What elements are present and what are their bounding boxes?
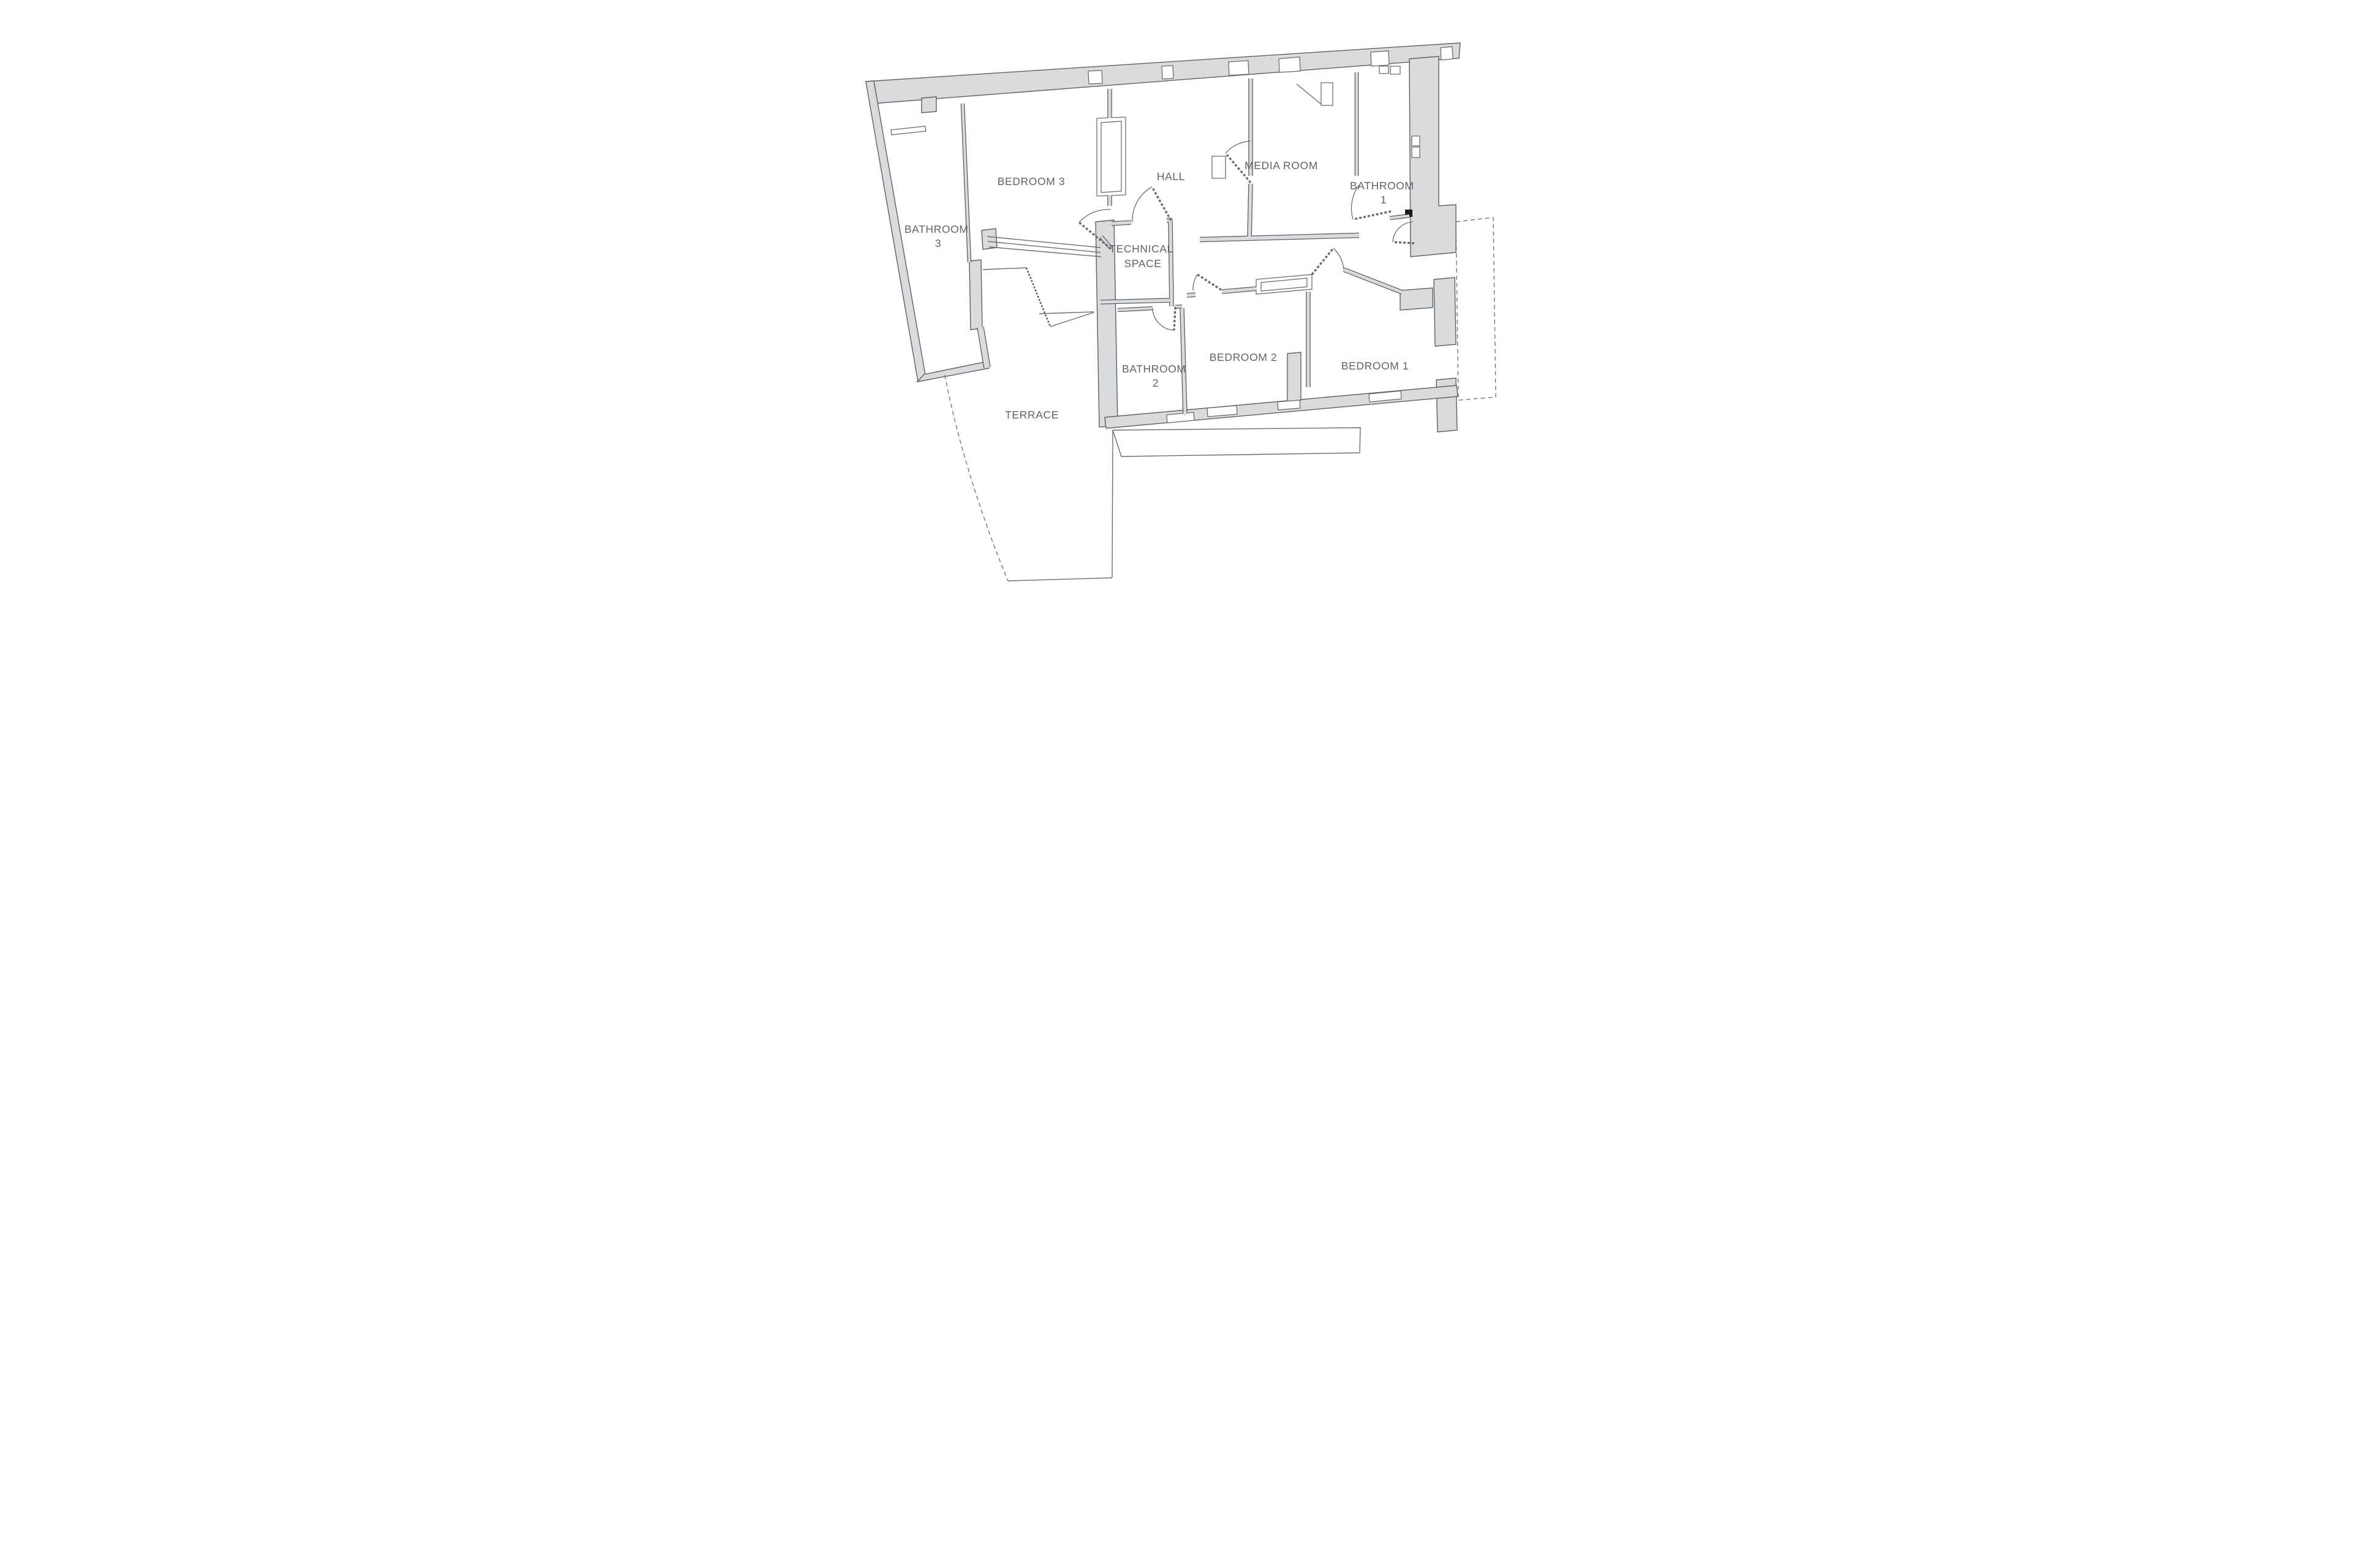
floor-plan-page: BEDROOM 3 BATHROOM 3 HALL MEDIA ROOM BAT… <box>703 0 1650 631</box>
door-arc <box>1132 187 1151 222</box>
window-top-1 <box>1088 70 1102 84</box>
lower-floor-outline <box>1113 428 1360 456</box>
window-top-4 <box>1279 57 1300 72</box>
room-label-bathroom-2: BATHROOM 2 <box>1121 363 1189 389</box>
room-label-terrace: TERRACE <box>1005 409 1059 421</box>
room-label-media-room: MEDIA ROOM <box>1245 159 1318 172</box>
door-leaf <box>1174 307 1175 330</box>
door-leaf <box>1353 211 1391 219</box>
terrace-window-line-1 <box>987 237 1101 248</box>
vestibule-bottom <box>1039 312 1094 314</box>
window-bottom-2 <box>1278 400 1300 410</box>
wall-bathroom3-pier <box>969 260 982 330</box>
door-arc <box>1226 141 1251 153</box>
room-label-bedroom-2: BEDROOM 2 <box>1209 351 1276 363</box>
door-bedroom-2 <box>1192 275 1221 290</box>
door-arc <box>1153 308 1174 330</box>
hall-closet-inner <box>1101 121 1121 192</box>
room-label-bathroom-1: BATHROOM 1 <box>1349 180 1417 206</box>
shaft-box-1 <box>1412 136 1420 146</box>
door-arc <box>1333 248 1344 270</box>
room-label-bathroom-3: BATHROOM 3 <box>904 223 971 249</box>
wall-chimney-pier <box>1287 352 1301 401</box>
bathroom1-fixture-1 <box>1379 66 1389 74</box>
door-leaf <box>1312 248 1333 275</box>
bathroom1-fixture-2 <box>1390 66 1400 74</box>
wall-topleft-stub <box>922 97 936 113</box>
door-bedroom-1 <box>1312 248 1344 275</box>
room-label-bedroom-1: BEDROOM 1 <box>1341 360 1408 372</box>
door-arc <box>1192 275 1197 290</box>
window-top-6 <box>1441 47 1453 60</box>
door-leaf <box>1152 187 1171 221</box>
thin-lines <box>983 84 1360 581</box>
vestibule-side <box>1050 312 1094 327</box>
window-top-5 <box>1371 51 1389 66</box>
door-leaf <box>1197 275 1221 290</box>
vestibule-link <box>983 268 1026 270</box>
room-label-hall: HALL <box>1156 170 1184 183</box>
terrace-right-edge <box>1112 430 1113 578</box>
floor-plan-drawing: BEDROOM 3 BATHROOM 3 HALL MEDIA ROOM BAT… <box>703 0 1650 631</box>
window-top-2 <box>1162 66 1173 79</box>
wall-bedroom1-arm <box>1400 288 1433 310</box>
terrace-boundary-curve <box>945 375 1008 581</box>
media-corner-diagonal <box>1297 84 1321 104</box>
shaft-box-2 <box>1412 147 1420 157</box>
wall-window-pier <box>982 229 997 249</box>
bathroom3-shelf <box>891 126 926 135</box>
hall-radiator <box>1212 156 1226 178</box>
room-label-bedroom-3: BEDROOM 3 <box>997 175 1064 187</box>
terrace-window-line-2 <box>988 241 1101 252</box>
door-technical-space <box>1132 187 1170 222</box>
terrace-window-line-3 <box>989 247 1101 257</box>
wall-bedroom1-stem <box>1434 278 1456 346</box>
wall-bathroom3-bottom <box>917 362 989 382</box>
window-top-3 <box>1229 61 1249 75</box>
adjacent-structure-outline <box>1456 218 1496 400</box>
media-room-column <box>1321 83 1333 105</box>
room-label-technical-space: TECHNICAL SPACE <box>1109 243 1176 270</box>
door-bathroom-2 <box>1153 307 1175 330</box>
terrace-bottom-edge <box>1008 578 1112 581</box>
terrace-steps-hatch <box>1026 268 1050 327</box>
